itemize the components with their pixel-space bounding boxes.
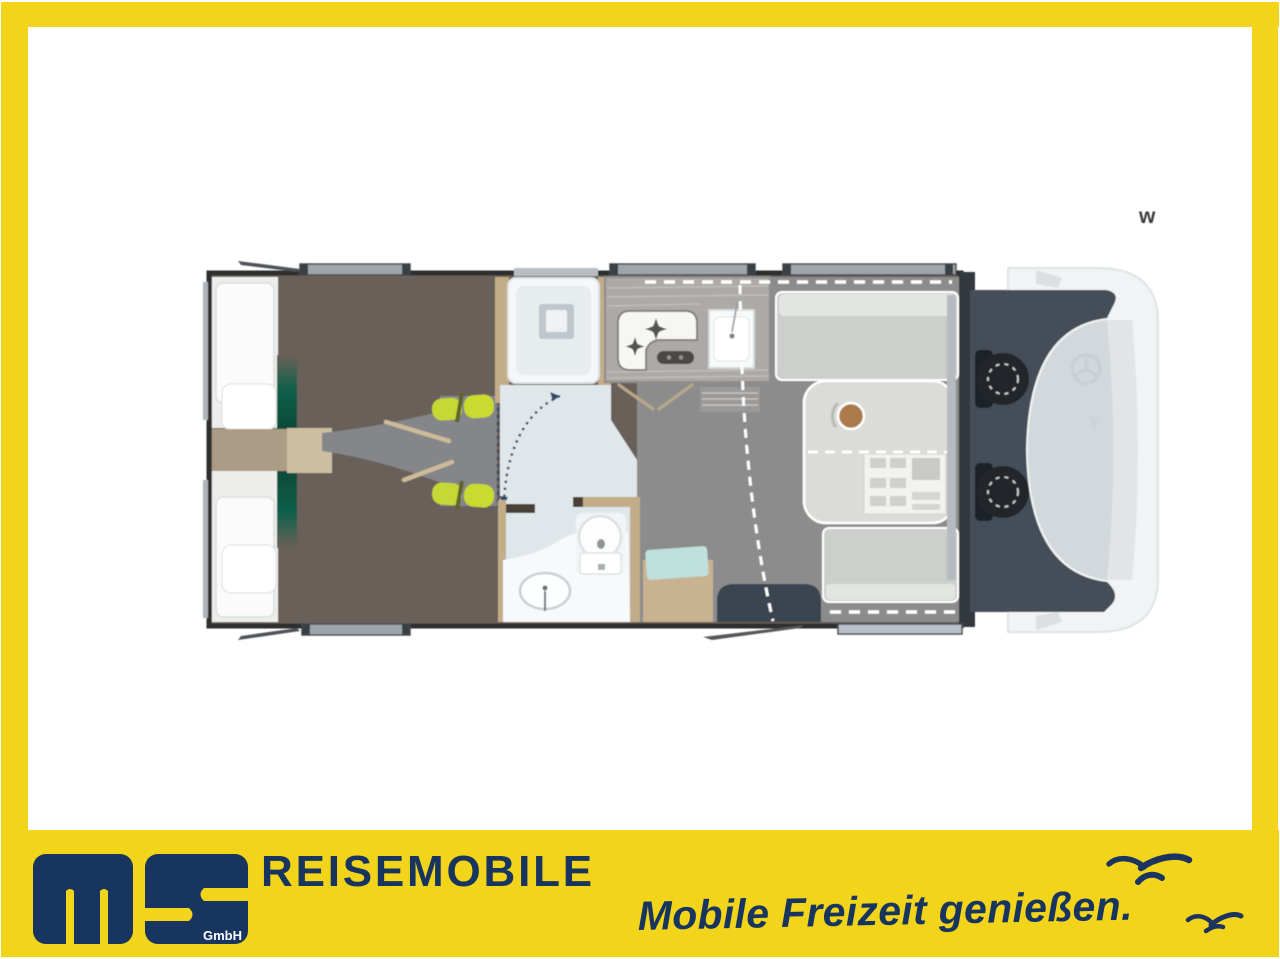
svg-text:GmbH: GmbH xyxy=(203,928,242,943)
svg-text:REISEMOBILE: REISEMOBILE xyxy=(261,847,595,896)
svg-text:w: w xyxy=(1138,205,1156,228)
